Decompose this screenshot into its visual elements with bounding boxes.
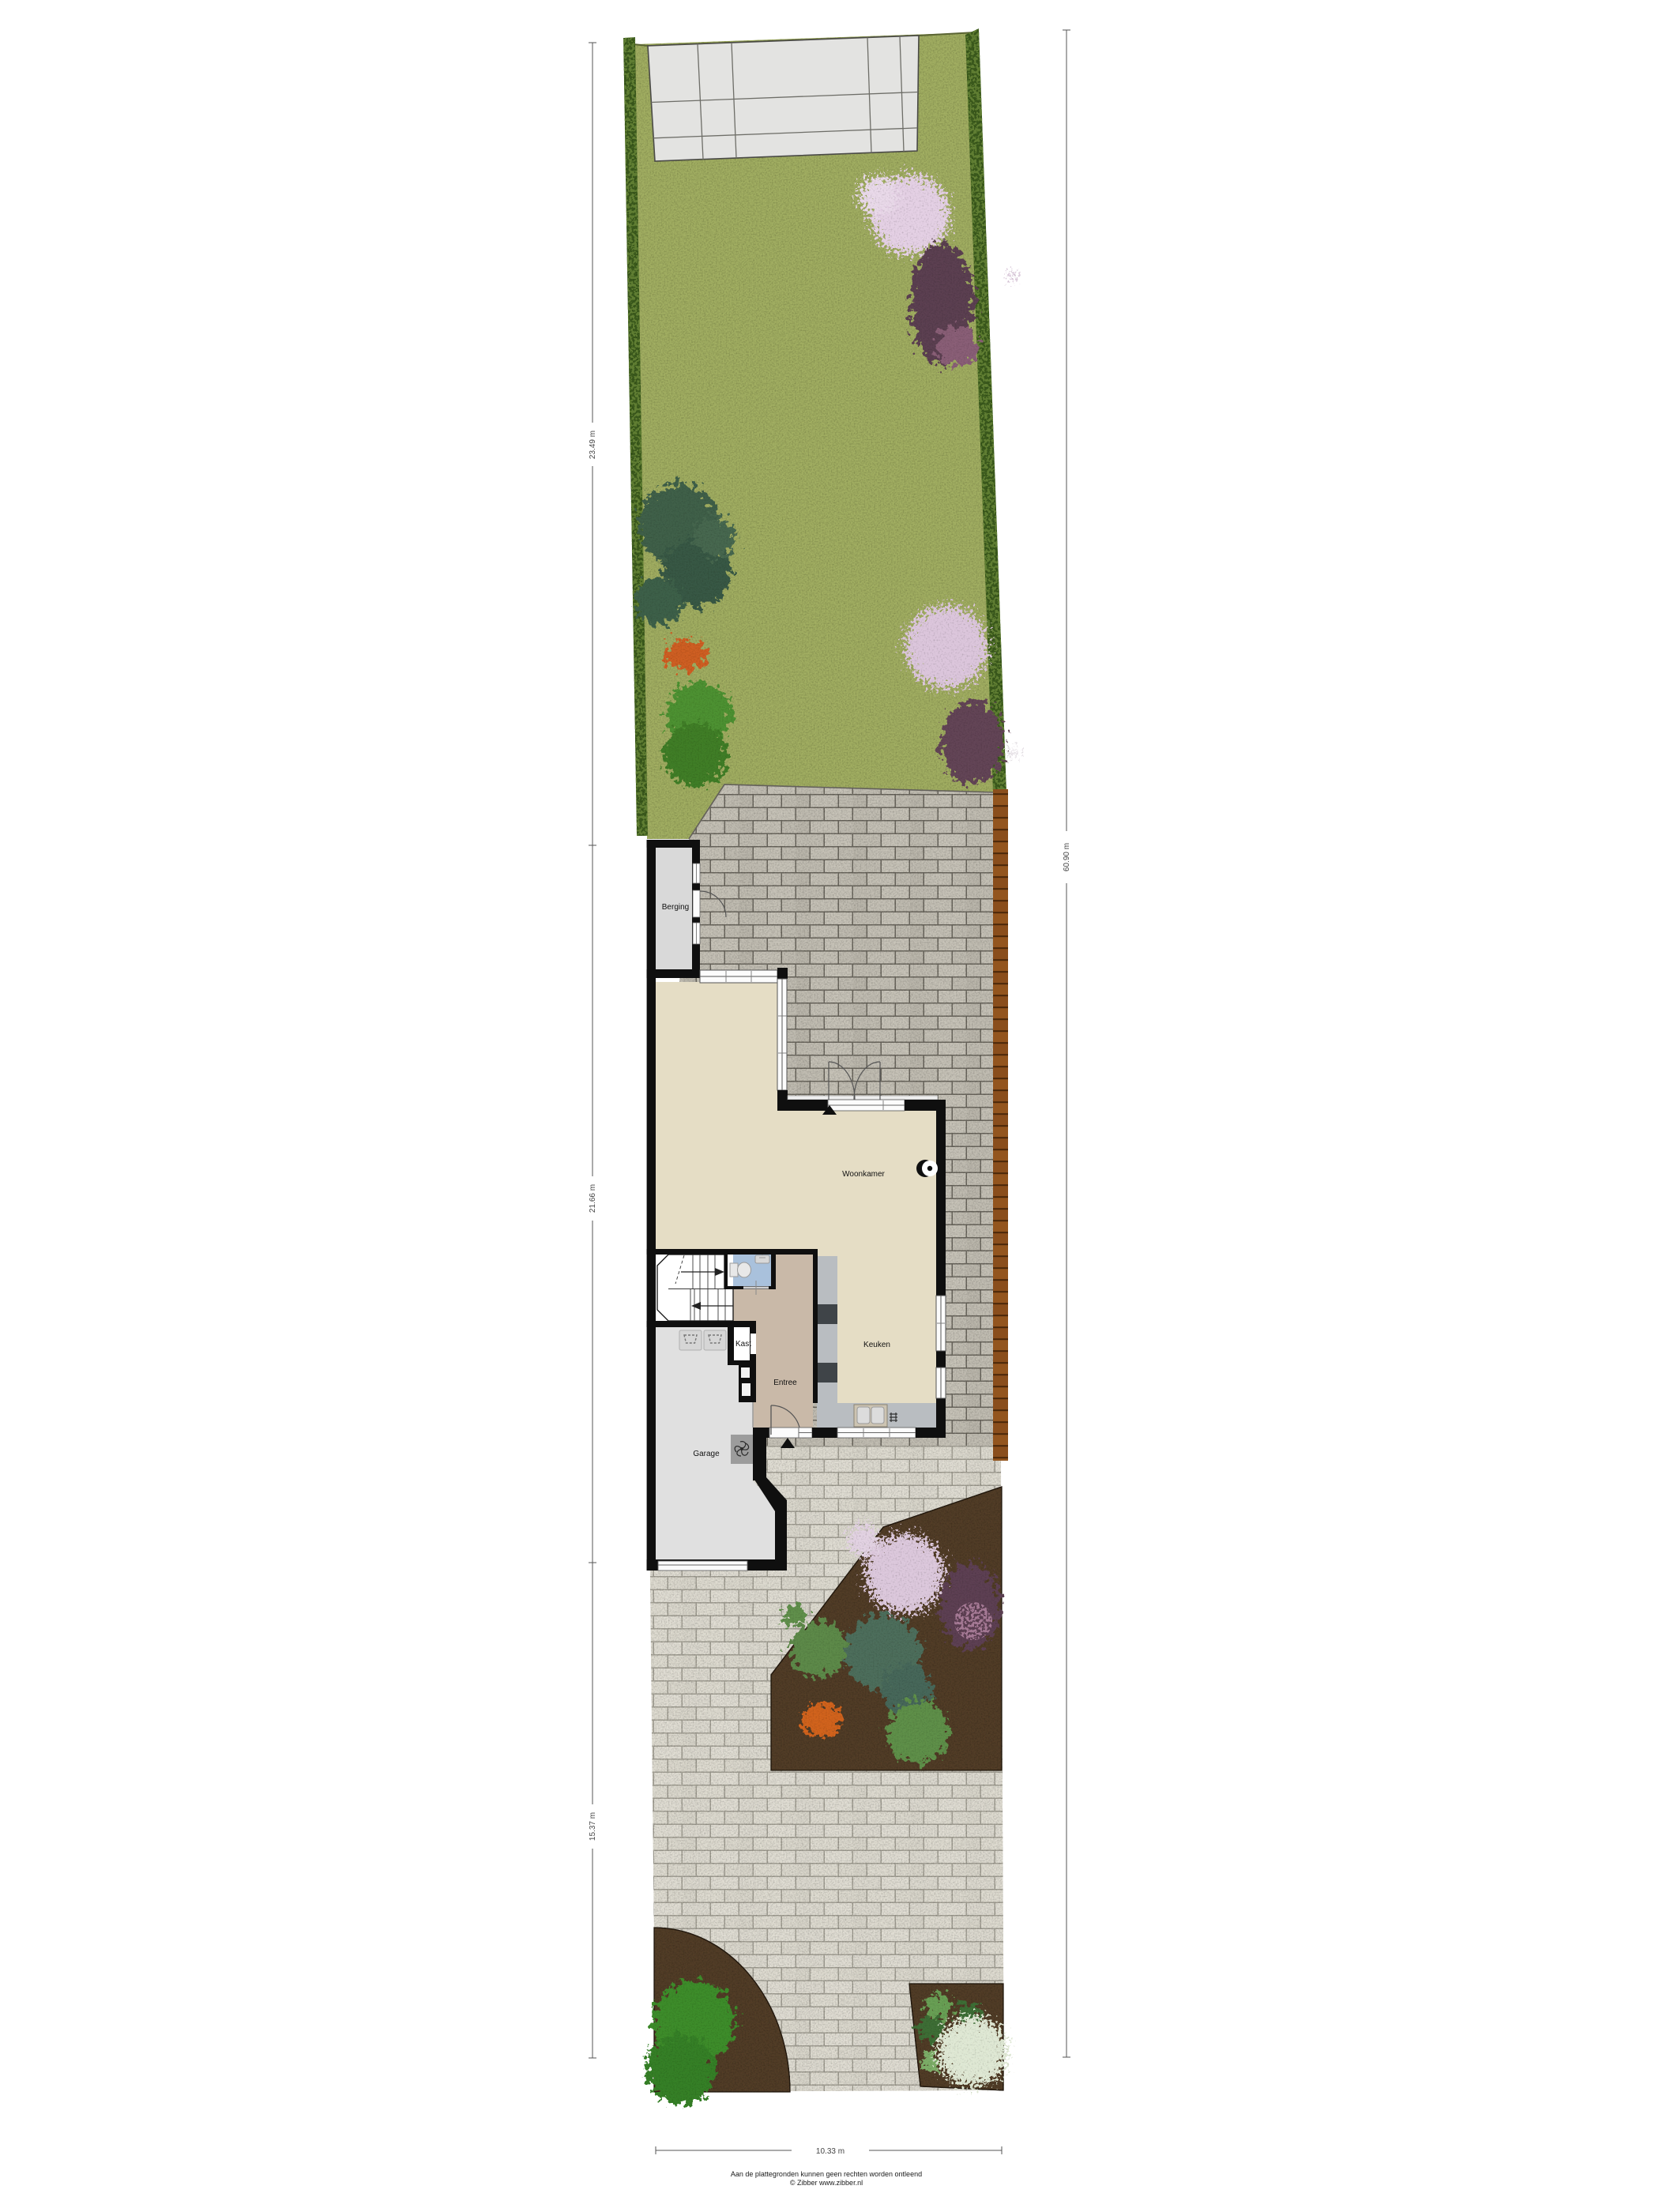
svg-text:60.90 m: 60.90 m (1063, 843, 1071, 871)
svg-text:Keuken: Keuken (863, 1341, 890, 1349)
svg-text:Aan de plattegronden kunnen ge: Aan de plattegronden kunnen geen rechten… (731, 2170, 922, 2178)
svg-text:Garage: Garage (693, 1450, 720, 1458)
svg-text:Woonkamer: Woonkamer (842, 1170, 885, 1179)
svg-text:15.37 m: 15.37 m (589, 1812, 597, 1841)
svg-text:10.33 m: 10.33 m (816, 2147, 845, 2156)
svg-text:21.66 m: 21.66 m (589, 1184, 597, 1213)
svg-text:23.49 m: 23.49 m (589, 431, 597, 459)
svg-text:Entree: Entree (773, 1379, 797, 1387)
svg-text:Berging: Berging (662, 903, 689, 912)
svg-text:© Zibber www.zibber.nl: © Zibber www.zibber.nl (790, 2179, 863, 2187)
svg-text:Kast: Kast (735, 1340, 751, 1349)
